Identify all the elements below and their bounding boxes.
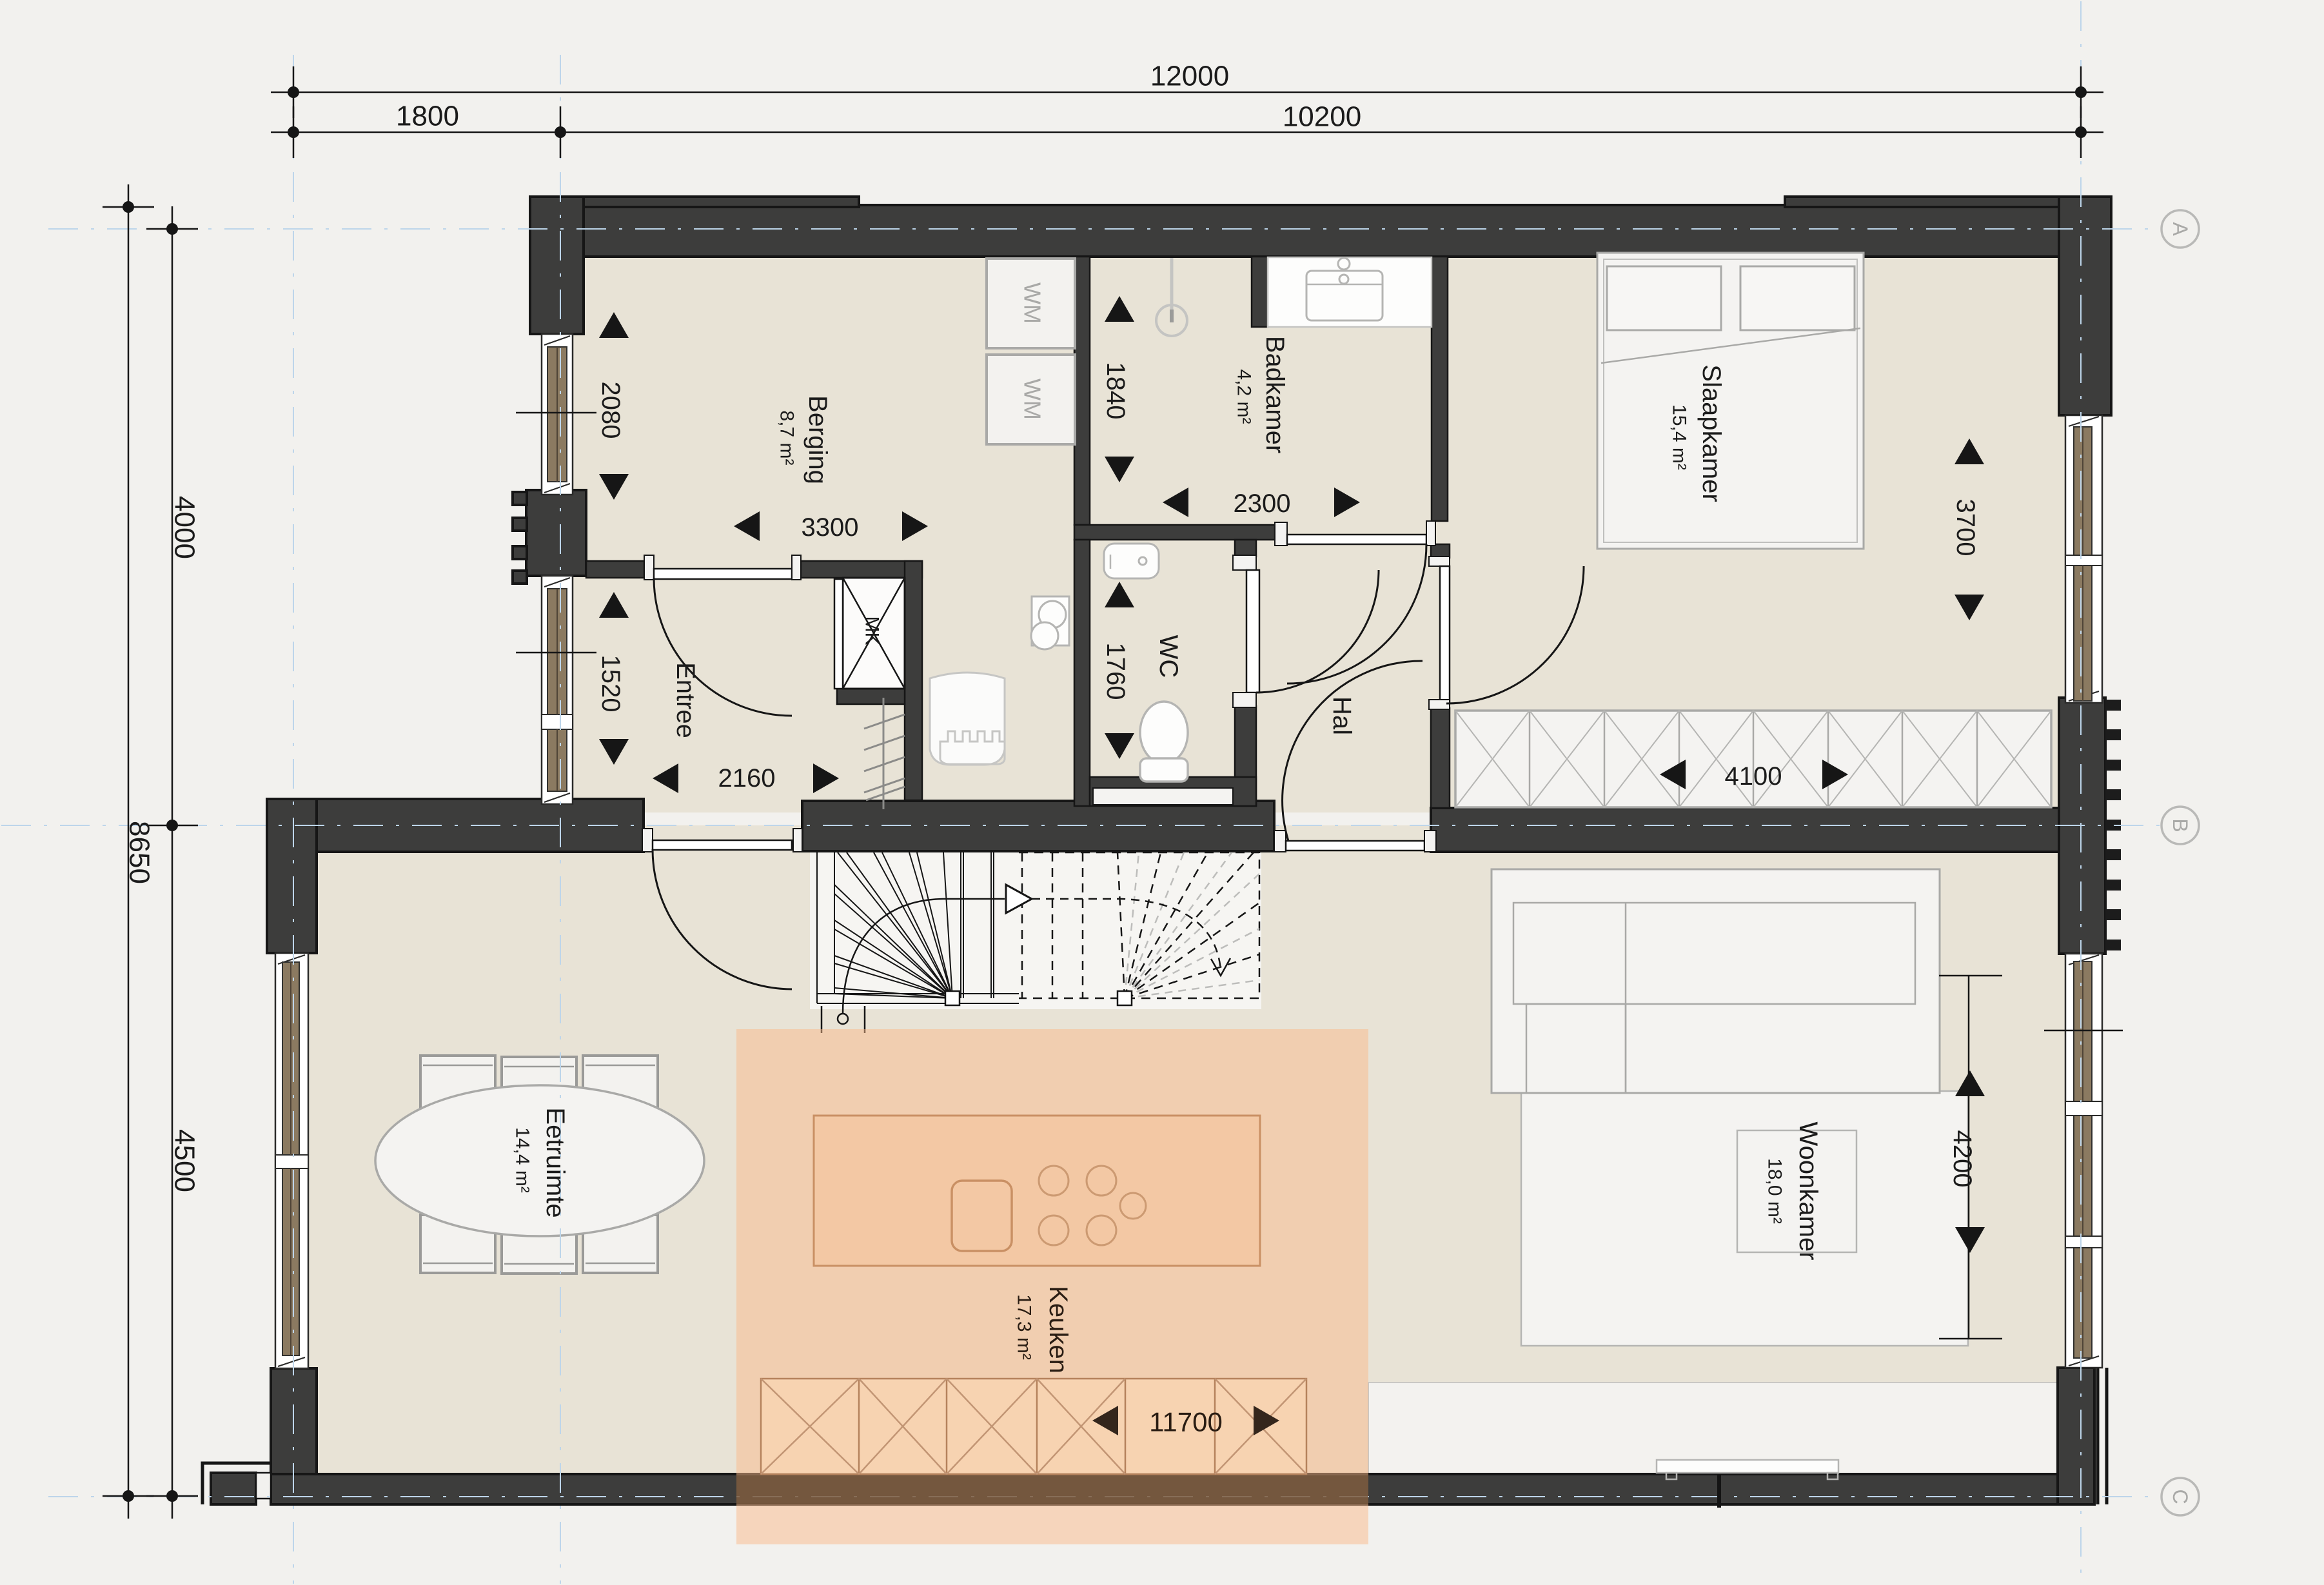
svg-text:4000: 4000 — [169, 496, 201, 559]
svg-text:17,3 m²: 17,3 m² — [1014, 1294, 1035, 1360]
svg-text:Slaapkamer: Slaapkamer — [1697, 364, 1726, 502]
svg-text:WM: WM — [1019, 282, 1046, 324]
svg-text:Berging: Berging — [803, 395, 832, 484]
svg-text:1520: 1520 — [596, 655, 625, 713]
svg-text:Badkamer: Badkamer — [1261, 336, 1289, 453]
svg-text:2080: 2080 — [596, 382, 625, 439]
svg-text:Entree: Entree — [671, 662, 700, 738]
svg-text:Eetruimte: Eetruimte — [541, 1107, 569, 1217]
svg-text:1800: 1800 — [396, 101, 459, 132]
svg-text:2300: 2300 — [1234, 489, 1291, 518]
svg-text:1760: 1760 — [1101, 643, 1130, 700]
svg-text:10200: 10200 — [1283, 101, 1361, 133]
svg-text:WC: WC — [1154, 635, 1183, 678]
svg-text:12000: 12000 — [1150, 61, 1229, 92]
svg-text:8650: 8650 — [124, 821, 155, 884]
svg-text:14,4 m²: 14,4 m² — [512, 1127, 533, 1193]
svg-text:1840: 1840 — [1101, 362, 1130, 420]
svg-text:C: C — [2169, 1489, 2192, 1504]
svg-text:4200: 4200 — [1948, 1130, 1976, 1188]
svg-text:15,4 m²: 15,4 m² — [1669, 404, 1690, 470]
svg-text:3700: 3700 — [1951, 499, 1980, 556]
svg-text:2160: 2160 — [718, 764, 776, 792]
svg-text:11700: 11700 — [1149, 1407, 1223, 1437]
svg-text:Hal: Hal — [1328, 696, 1356, 735]
svg-text:B: B — [2169, 818, 2192, 832]
svg-text:WM: WM — [1019, 379, 1046, 420]
svg-text:3300: 3300 — [802, 513, 859, 542]
svg-text:MK: MK — [862, 616, 883, 645]
svg-text:4100: 4100 — [1725, 762, 1782, 791]
svg-text:Woonkamer: Woonkamer — [1794, 1122, 1822, 1261]
svg-text:18,0 m²: 18,0 m² — [1764, 1158, 1786, 1224]
svg-text:4,2 m²: 4,2 m² — [1234, 369, 1255, 424]
svg-text:A: A — [2169, 222, 2192, 236]
svg-text:4500: 4500 — [169, 1129, 201, 1192]
svg-text:Keuken: Keuken — [1044, 1286, 1072, 1373]
svg-text:8,7 m²: 8,7 m² — [776, 410, 798, 465]
